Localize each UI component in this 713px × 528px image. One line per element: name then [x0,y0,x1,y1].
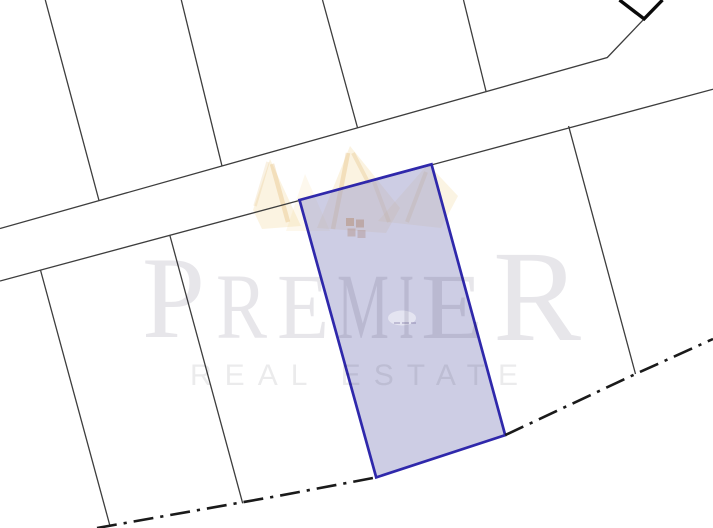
svg-text:P: P [142,234,205,363]
svg-text:E: E [277,256,329,359]
svg-text:M: M [337,256,389,359]
svg-text:I: I [399,256,414,359]
svg-text:R: R [216,256,267,359]
svg-text:R: R [493,225,581,369]
svg-text:REAL ESTATE: REAL ESTATE [190,359,518,392]
svg-text:E: E [421,256,483,359]
